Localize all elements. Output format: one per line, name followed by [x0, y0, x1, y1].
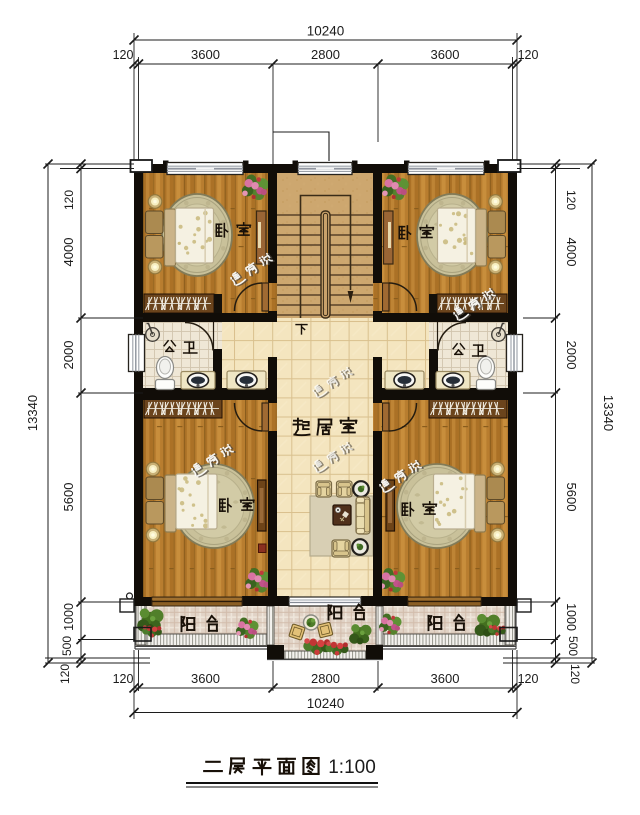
svg-text:13340: 13340	[601, 395, 616, 431]
svg-text:120: 120	[518, 672, 539, 686]
svg-text:3600: 3600	[431, 671, 460, 686]
svg-text:10240: 10240	[307, 24, 345, 39]
svg-text:3600: 3600	[431, 47, 460, 62]
svg-text:500: 500	[60, 636, 74, 656]
svg-text:4000: 4000	[564, 238, 579, 267]
svg-text:120: 120	[58, 664, 72, 684]
svg-text:2000: 2000	[564, 341, 579, 370]
svg-text:2800: 2800	[311, 47, 340, 62]
svg-text:120: 120	[564, 190, 578, 210]
svg-text:120: 120	[113, 48, 134, 62]
svg-text:13340: 13340	[25, 395, 40, 431]
svg-text:120: 120	[518, 48, 539, 62]
svg-text:5600: 5600	[564, 483, 579, 512]
svg-text:2000: 2000	[61, 341, 76, 370]
svg-text:5600: 5600	[61, 483, 76, 512]
svg-text:120: 120	[568, 664, 582, 684]
svg-text:2800: 2800	[311, 671, 340, 686]
svg-text:4000: 4000	[61, 238, 76, 267]
svg-text:120: 120	[62, 190, 76, 210]
svg-text:120: 120	[113, 672, 134, 686]
svg-text:3600: 3600	[191, 47, 220, 62]
svg-text:500: 500	[566, 636, 580, 656]
svg-text:3600: 3600	[191, 671, 220, 686]
svg-text:1:100: 1:100	[328, 757, 376, 778]
svg-text:1000: 1000	[564, 603, 578, 631]
svg-text:1000: 1000	[62, 603, 76, 631]
svg-text:10240: 10240	[307, 696, 345, 711]
